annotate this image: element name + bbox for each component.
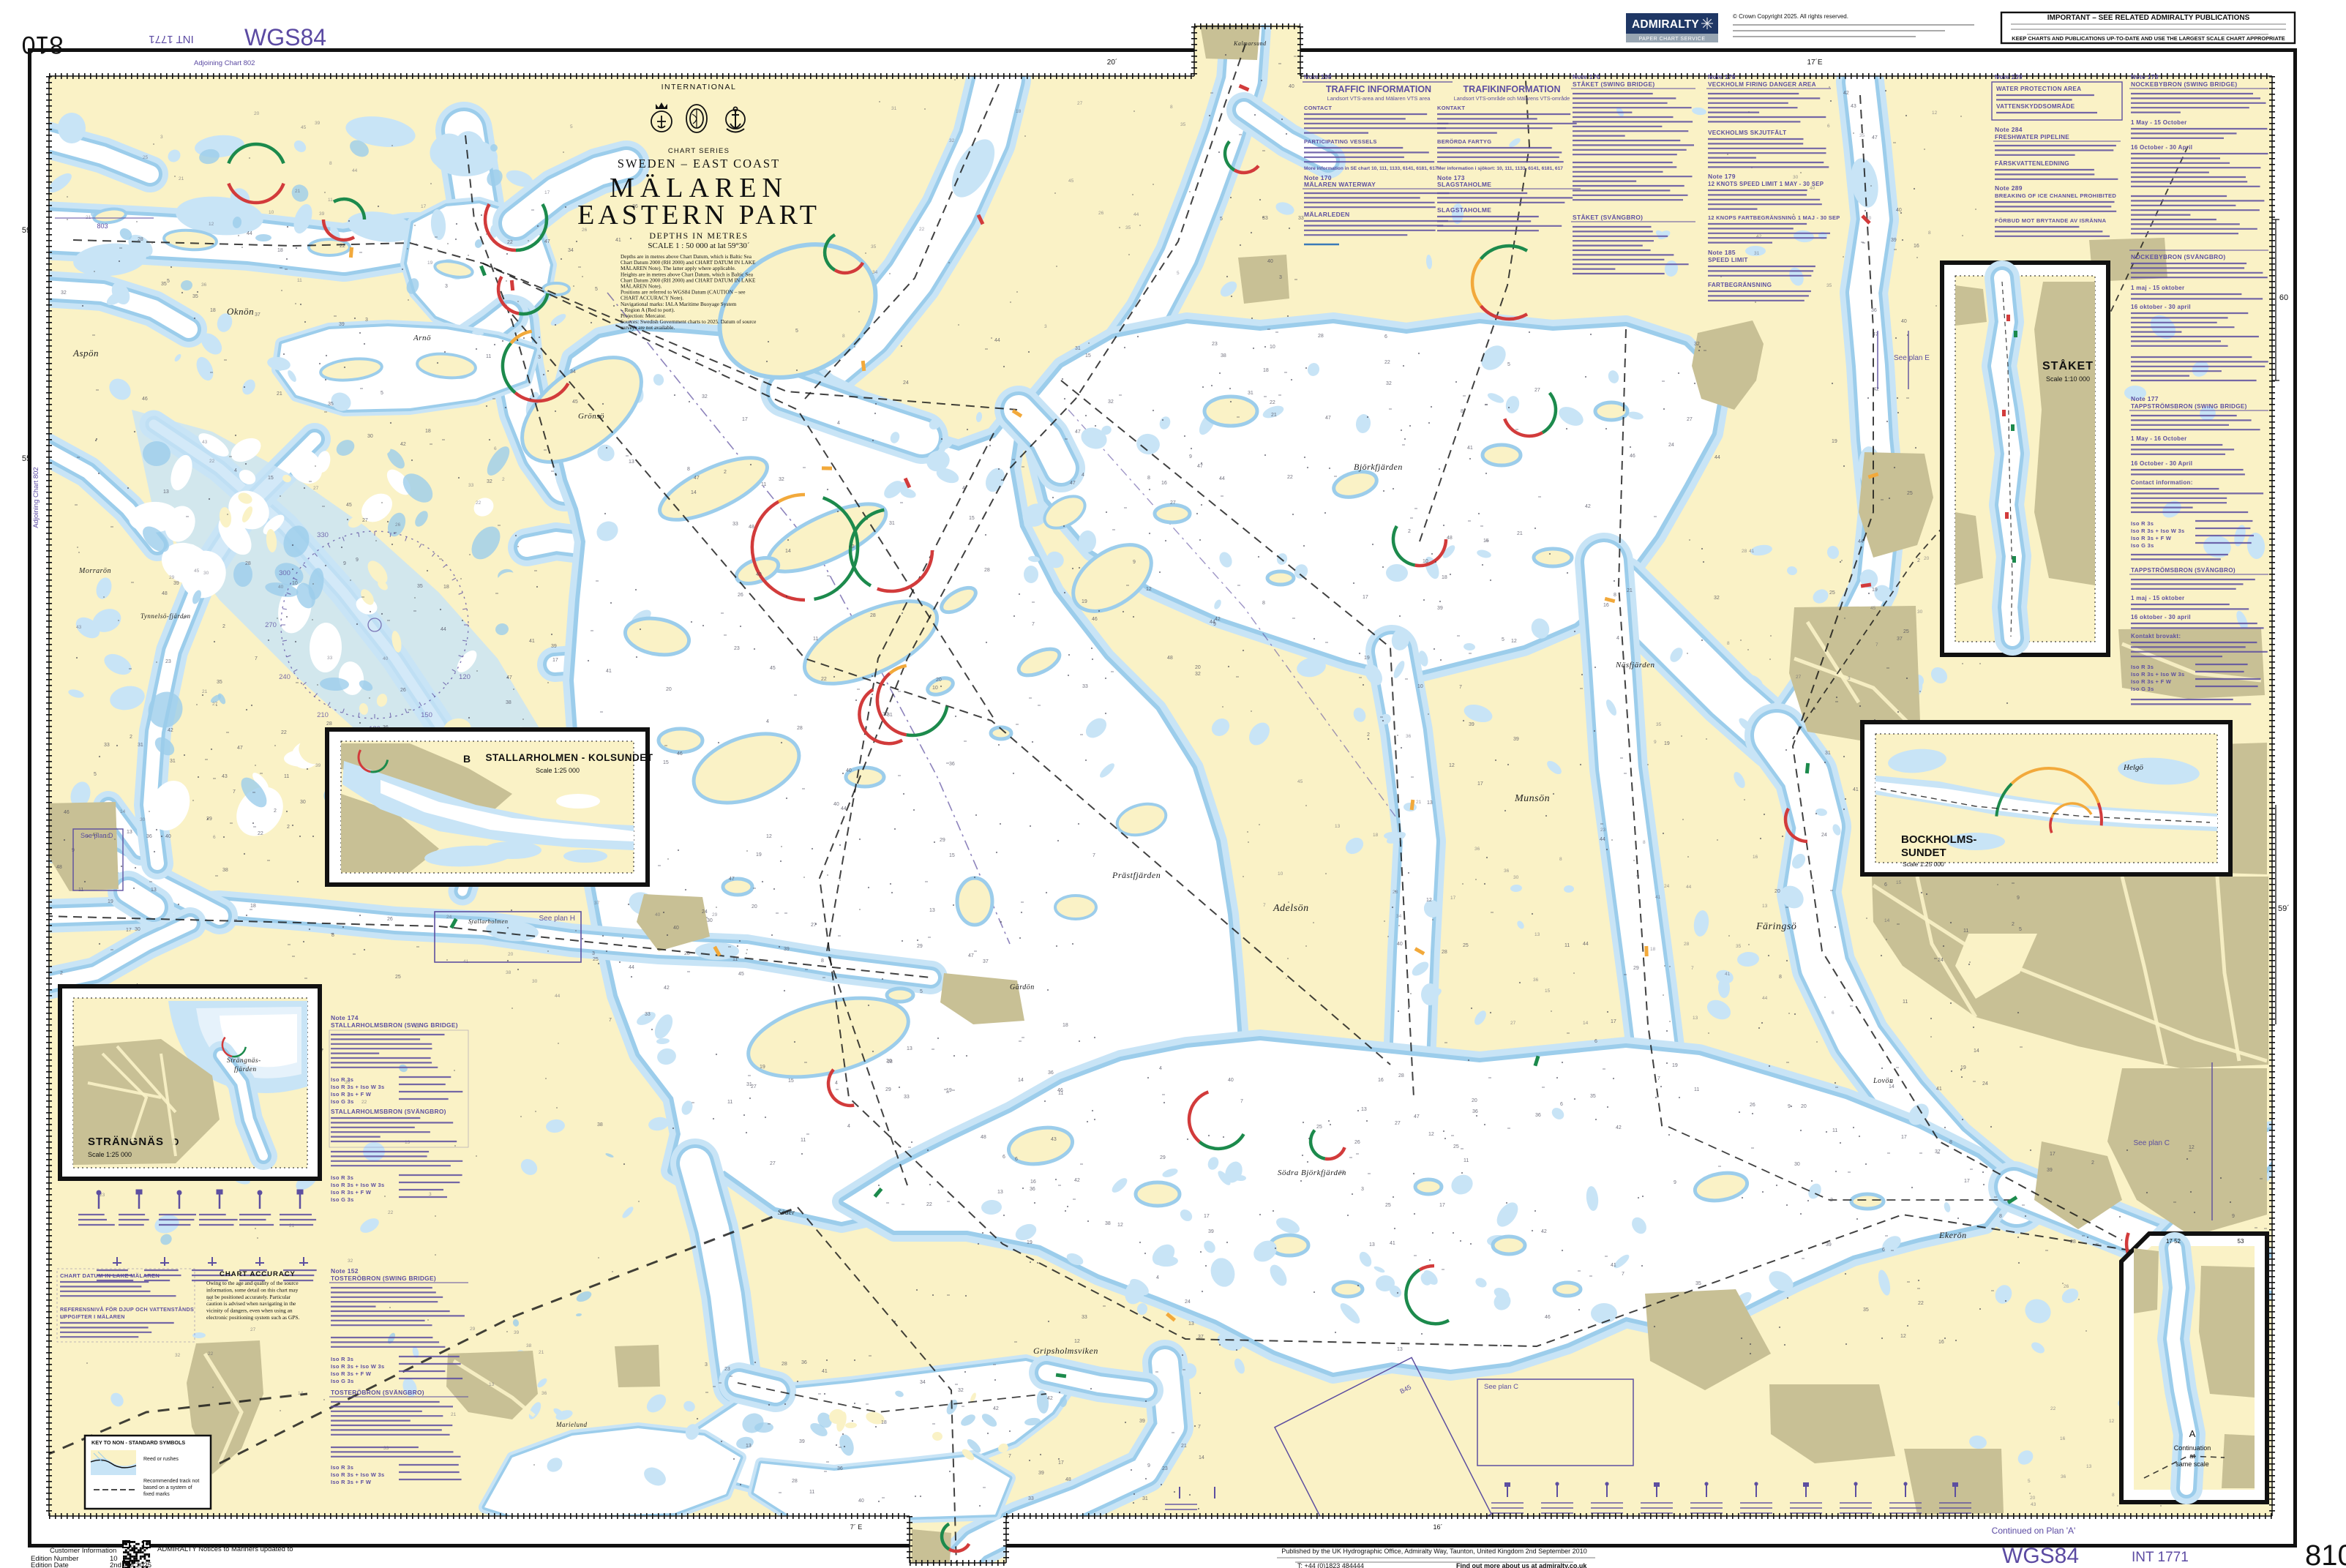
svg-text:43: 43 [2031,1502,2036,1507]
svg-text:28: 28 [245,561,251,566]
svg-text:Iso G 3s: Iso G 3s [331,1098,354,1105]
svg-text:30: 30 [140,817,146,822]
svg-text:21: 21 [1181,1444,1187,1449]
svg-text:43: 43 [222,774,228,779]
svg-text:Continued on Plan 'A': Continued on Plan 'A' [1992,1526,2076,1536]
svg-text:1 maj - 15 oktober: 1 maj - 15 oktober [2131,285,2184,291]
svg-text:1 May - 15 October: 1 May - 15 October [2131,119,2187,126]
svg-text:14: 14 [785,549,791,554]
svg-text:4: 4 [847,1124,850,1129]
svg-text:27: 27 [250,1327,256,1332]
svg-text:Iso R 3s + F W: Iso R 3s + F W [2131,678,2172,685]
svg-text:24: 24 [702,909,708,915]
svg-text:17 52: 17 52 [2166,1238,2181,1245]
svg-text:47: 47 [968,953,974,959]
svg-text:Iso R 3s: Iso R 3s [2131,664,2154,670]
svg-text:Grönsö: Grönsö [578,412,604,421]
svg-text:36: 36 [2061,1474,2066,1479]
svg-text:Note 289: Note 289 [1995,184,2023,192]
svg-text:32: 32 [1694,342,1700,347]
svg-text:30: 30 [882,712,888,717]
svg-text:21: 21 [277,391,282,397]
svg-text:13: 13 [1534,932,1540,937]
svg-text:12: 12 [1117,1223,1123,1228]
svg-text:INTERNATIONAL: INTERNATIONAL [662,83,737,91]
svg-text:25: 25 [143,155,149,160]
svg-text:44: 44 [629,965,634,970]
svg-text:38: 38 [1105,1221,1111,1226]
svg-text:11: 11 [1564,943,1570,948]
svg-text:24: 24 [1664,884,1670,889]
svg-text:16: 16 [1603,603,1609,608]
svg-text:fjärden: fjärden [234,1065,257,1073]
svg-text:20: 20 [1195,665,1201,670]
svg-text:28: 28 [782,1362,787,1367]
svg-text:44: 44 [247,231,252,236]
svg-text:TOSTERÖBRON (SWING BRIDGE): TOSTERÖBRON (SWING BRIDGE) [331,1275,436,1282]
svg-text:REFERENSNIVÅ FÖR DJUP OCH VATT: REFERENSNIVÅ FÖR DJUP OCH VATTENSTÅNDS [60,1306,194,1313]
svg-text:11: 11 [1963,929,1968,934]
svg-text:electronic positioning system: electronic positioning system such as GP… [206,1314,299,1321]
svg-text:11: 11 [761,482,766,487]
svg-text:18: 18 [1650,947,1656,952]
svg-text:3: 3 [445,284,448,289]
svg-text:48: 48 [1065,1477,1071,1482]
svg-text:17: 17 [1901,1135,1907,1140]
svg-text:13: 13 [1693,1016,1698,1021]
svg-text:42: 42 [1215,617,1221,622]
svg-text:6: 6 [494,446,497,451]
svg-text:15: 15 [1483,539,1489,544]
svg-text:15: 15 [663,760,669,765]
svg-text:38: 38 [597,1122,603,1128]
svg-text:INT 1771: INT 1771 [149,33,193,45]
svg-text:Note 176: Note 176 [1573,73,1600,80]
svg-text:22: 22 [919,227,925,232]
svg-text:26: 26 [738,593,743,598]
svg-text:42: 42 [664,986,670,991]
svg-text:59´: 59´ [2278,904,2290,913]
svg-text:15: 15 [1545,989,1551,994]
svg-text:32: 32 [487,479,492,484]
svg-text:TRAFFIC INFORMATION: TRAFFIC INFORMATION [1326,84,1431,94]
svg-text:Note 152: Note 152 [331,1267,359,1275]
svg-text:7: 7 [1459,685,1462,690]
svg-text:47: 47 [1197,464,1203,469]
svg-text:12: 12 [1449,763,1455,768]
svg-text:34: 34 [570,370,576,375]
svg-text:4: 4 [1616,636,1619,641]
svg-text:41: 41 [529,639,535,644]
svg-text:8: 8 [329,161,332,166]
svg-text:14: 14 [1889,1084,1895,1089]
svg-text:UPPGIFTER I MÄLAREN: UPPGIFTER I MÄLAREN [60,1313,125,1320]
svg-text:41: 41 [606,669,612,674]
svg-text:32: 32 [1714,596,1720,601]
svg-text:30: 30 [1917,609,1923,615]
svg-text:41: 41 [1853,787,1859,792]
svg-text:28: 28 [984,568,990,573]
svg-text:9: 9 [1189,454,1192,459]
svg-text:47: 47 [694,476,700,481]
svg-text:9: 9 [1654,740,1657,745]
svg-text:40: 40 [165,834,171,839]
svg-text:330: 330 [317,531,329,539]
svg-text:28: 28 [1442,950,1447,955]
svg-text:9: 9 [356,558,359,563]
svg-text:5: 5 [1220,217,1223,222]
svg-text:35: 35 [328,402,334,407]
svg-text:8: 8 [1170,105,1173,110]
svg-text:34: 34 [1396,914,1402,919]
svg-text:2: 2 [502,477,505,482]
svg-text:25: 25 [1316,1125,1322,1130]
svg-text:Scale 1:25 000: Scale 1:25 000 [536,767,580,774]
svg-text:45: 45 [1870,606,1876,611]
svg-text:11: 11 [284,774,289,779]
svg-text:25: 25 [1453,1144,1459,1149]
svg-text:23: 23 [724,1367,730,1372]
svg-text:Ekerön: Ekerön [1938,1230,1967,1240]
svg-text:3: 3 [160,135,163,140]
svg-text:35: 35 [192,294,198,299]
svg-text:19: 19 [1872,588,1878,593]
svg-text:26: 26 [387,917,393,922]
svg-text:31: 31 [138,743,143,748]
svg-text:31: 31 [1754,251,1760,256]
svg-text:13: 13 [1369,1242,1375,1248]
svg-text:29: 29 [917,944,923,949]
svg-text:Tynnelsö-fjärden: Tynnelsö-fjärden [140,612,191,620]
svg-text:7: 7 [1093,853,1095,858]
svg-text:5: 5 [2019,927,2022,932]
svg-text:41: 41 [1749,549,1755,554]
svg-text:38: 38 [526,1343,532,1348]
svg-text:21: 21 [202,689,208,694]
svg-text:12: 12 [1900,1334,1906,1339]
svg-text:34: 34 [920,1380,926,1385]
svg-text:33: 33 [1262,216,1268,221]
svg-text:Note 284: Note 284 [1995,126,2023,133]
svg-text:39: 39 [1437,606,1443,611]
svg-text:Customer Information: Customer Information [50,1547,116,1555]
svg-text:33: 33 [645,1012,651,1017]
svg-text:2: 2 [60,971,63,976]
svg-text:STALLARHOLMSBRON (SWING BRIDGE: STALLARHOLMSBRON (SWING BRIDGE) [331,1021,458,1029]
svg-text:Arnö: Arnö [413,334,431,342]
svg-text:37: 37 [594,901,600,906]
svg-text:40: 40 [673,926,679,931]
svg-text:36: 36 [1871,308,1877,313]
svg-text:12: 12 [1932,110,1938,116]
svg-text:7: 7 [1032,622,1035,627]
svg-text:Iso R 3s + F W: Iso R 3s + F W [331,1479,372,1485]
svg-text:41: 41 [1611,1263,1616,1268]
svg-text:35: 35 [217,680,222,685]
svg-text:4: 4 [234,468,237,473]
svg-text:28: 28 [1684,942,1690,947]
svg-text:48: 48 [749,525,754,530]
svg-text:40: 40 [1228,1078,1234,1083]
svg-text:37: 37 [1198,1335,1204,1340]
svg-text:Marielund: Marielund [555,1421,588,1428]
svg-text:INT 1771: INT 1771 [2132,1550,2189,1565]
svg-text:Scale 1:25 000: Scale 1:25 000 [1903,860,1944,868]
svg-text:37: 37 [1897,637,1903,642]
svg-text:STÅKET (SVÄNGBRO): STÅKET (SVÄNGBRO) [1573,214,1643,221]
svg-text:23: 23 [1212,342,1218,347]
svg-text:27: 27 [1395,1121,1401,1126]
svg-text:28: 28 [870,613,876,618]
svg-text:20´: 20´ [1107,58,1117,67]
svg-text:19: 19 [1664,741,1670,746]
svg-text:44: 44 [994,338,1000,343]
svg-text:22: 22 [1384,360,1390,365]
svg-text:18: 18 [443,585,449,590]
svg-text:PARTICIPATING VESSELS: PARTICIPATING VESSELS [1304,138,1377,145]
svg-text:7: 7 [1263,903,1266,908]
svg-text:36: 36 [1472,1109,1478,1114]
svg-text:Contact information:: Contact information: [2131,479,2193,486]
svg-text:23: 23 [165,659,171,664]
svg-text:19: 19 [108,899,113,904]
svg-text:17: 17 [421,204,427,209]
svg-text:KONTAKT: KONTAKT [1437,105,1465,111]
svg-text:47: 47 [544,239,550,244]
svg-text:37: 37 [1935,1149,1941,1155]
svg-text:35: 35 [1656,722,1662,727]
svg-text:See plan E: See plan E [1894,354,1930,362]
svg-text:Edition Date: Edition Date [31,1561,69,1568]
svg-text:Note 178: Note 178 [2131,73,2159,80]
svg-text:Södra Björkfjärden: Södra Björkfjärden [1278,1169,1346,1177]
svg-text:36: 36 [1048,1070,1054,1076]
svg-text:22: 22 [281,730,287,735]
svg-text:NOCKEBYBRON (SWING BRIDGE): NOCKEBYBRON (SWING BRIDGE) [2131,80,2238,88]
svg-text:caution is advised when naviga: caution is advised when navigating in th… [206,1300,296,1307]
svg-text:19: 19 [1082,599,1087,604]
svg-text:SWEDEN – EAST COAST: SWEDEN – EAST COAST [618,157,780,170]
svg-text:PAPER CHART SERVICE: PAPER CHART SERVICE [1638,37,1705,42]
svg-text:15: 15 [969,516,975,521]
svg-text:39: 39 [339,322,345,327]
svg-text:Note 174: Note 174 [331,1014,359,1021]
svg-text:30: 30 [203,571,209,576]
svg-text:9: 9 [1674,1180,1676,1185]
svg-text:22: 22 [507,240,513,245]
svg-text:22: 22 [926,1202,932,1207]
svg-text:33: 33 [468,483,474,488]
svg-text:6: 6 [1594,1039,1597,1044]
svg-text:surveys are not available.: surveys are not available. [621,324,675,331]
svg-text:Munsön: Munsön [1514,793,1550,804]
svg-text:810: 810 [2305,1539,2346,1568]
svg-text:33: 33 [904,1095,910,1100]
svg-text:25: 25 [1903,629,1909,634]
svg-text:Iso G 3s: Iso G 3s [2131,542,2154,549]
svg-text:8: 8 [1614,593,1616,598]
svg-text:30: 30 [1513,875,1519,880]
svg-text:3: 3 [1361,1187,1364,1192]
svg-text:5: 5 [167,279,170,284]
svg-text:2: 2 [1367,732,1370,738]
svg-text:15: 15 [1896,880,1902,885]
svg-text:45: 45 [770,666,776,671]
svg-text:Landsort VTS-område och Mälare: Landsort VTS-område och Mälarens VTS-omr… [1454,95,1570,102]
svg-text:29: 29 [470,1327,476,1332]
svg-text:Iso R 3s: Iso R 3s [2131,520,2154,527]
svg-text:18: 18 [1373,833,1379,838]
svg-text:11: 11 [727,1100,732,1105]
svg-text:5: 5 [2028,1479,2031,1484]
svg-text:27: 27 [1170,500,1176,506]
svg-text:20: 20 [2030,1496,2036,1501]
svg-text:270: 270 [265,621,277,629]
svg-text:Aspön: Aspön [72,348,99,359]
svg-text:29: 29 [885,1087,891,1092]
svg-text:43: 43 [1051,1137,1057,1142]
svg-text:22: 22 [1918,1301,1924,1306]
svg-text:KEEP CHARTS AND PUBLICATIONS U: KEEP CHARTS AND PUBLICATIONS UP-TO-DATE … [2012,35,2285,42]
svg-text:31: 31 [1248,391,1253,396]
svg-text:42: 42 [168,728,173,733]
svg-text:35: 35 [1180,122,1186,127]
svg-text:36: 36 [1030,1187,1035,1192]
svg-text:12: 12 [2189,1145,2195,1150]
svg-text:22: 22 [1270,400,1275,405]
svg-text:NOCKEBYBRON (SVÄNGBRO): NOCKEBYBRON (SVÄNGBRO) [2131,253,2225,260]
svg-text:15: 15 [949,853,955,858]
svg-text:6: 6 [1003,1155,1005,1160]
svg-text:46: 46 [1057,1088,1063,1093]
svg-text:43: 43 [1851,104,1856,109]
svg-text:ADMIRALTY Notices to Mariners: ADMIRALTY Notices to Mariners updated to [157,1545,293,1553]
svg-text:17: 17 [1439,1203,1445,1208]
svg-text:19: 19 [427,260,433,266]
svg-text:46: 46 [1630,454,1635,459]
svg-text:39: 39 [799,1439,805,1444]
svg-text:16: 16 [1030,1179,1036,1185]
svg-text:12: 12 [766,834,772,839]
svg-text:Iso R 3s + Iso W 3s: Iso R 3s + Iso W 3s [331,1182,384,1188]
svg-text:27: 27 [1687,417,1693,422]
svg-text:18: 18 [887,1059,893,1065]
svg-text:44: 44 [841,806,847,811]
svg-text:14: 14 [1974,1049,1979,1054]
svg-text:11: 11 [801,1138,806,1143]
svg-text:See plan C: See plan C [1484,1383,1518,1391]
svg-text:11: 11 [813,637,818,642]
svg-text:150: 150 [421,711,432,719]
svg-text:17: 17 [2050,1152,2055,1157]
svg-text:13: 13 [1335,824,1341,829]
svg-text:17: 17 [126,928,132,933]
svg-text:KEY TO NON - STANDARD SYMBOLS: KEY TO NON - STANDARD SYMBOLS [91,1439,185,1446]
svg-text:Iso R 3s + Iso W 3s: Iso R 3s + Iso W 3s [2131,671,2184,678]
svg-text:8: 8 [1461,409,1464,414]
svg-text:TRAFIKINFORMATION: TRAFIKINFORMATION [1463,84,1560,94]
svg-text:VECKHOLMS SKJUTFÄLT: VECKHOLMS SKJUTFÄLT [1708,129,1786,136]
svg-text:11: 11 [486,354,491,359]
svg-text:39: 39 [315,763,321,768]
svg-text:300: 300 [279,569,291,577]
svg-text:42: 42 [1873,387,1879,392]
svg-text:3: 3 [1279,275,1282,280]
svg-text:Iso R 3s + F W: Iso R 3s + F W [331,1370,372,1377]
svg-text:36: 36 [1535,1113,1541,1118]
svg-text:44: 44 [441,627,446,632]
svg-text:Iso R 3s: Iso R 3s [331,1464,353,1471]
svg-text:21: 21 [1517,531,1523,536]
svg-text:1 maj - 15 oktober: 1 maj - 15 oktober [2131,595,2184,601]
svg-text:Kontakt brovakt:: Kontakt brovakt: [2131,633,2181,639]
svg-text:20: 20 [1801,1104,1807,1109]
svg-text:19: 19 [1672,1063,1678,1068]
svg-text:Morrarön: Morrarön [78,567,111,575]
svg-text:11: 11 [732,957,738,962]
svg-text:42: 42 [400,442,406,447]
svg-text:not be positioned accurately.: not be positioned accurately. Particular [206,1294,291,1300]
svg-text:9: 9 [343,561,346,566]
svg-text:2: 2 [1408,529,1411,534]
svg-text:16 October - 30 April: 16 October - 30 April [2131,460,2192,467]
svg-text:30: 30 [1794,1162,1800,1167]
svg-text:WGS84: WGS84 [2002,1544,2079,1568]
svg-text:42: 42 [1843,91,1849,96]
svg-text:27: 27 [212,702,218,707]
svg-text:24: 24 [1185,1299,1191,1305]
svg-text:13: 13 [997,1190,1003,1195]
svg-text:28: 28 [684,951,690,956]
svg-text:44: 44 [555,994,561,999]
svg-text:20: 20 [752,904,757,909]
svg-text:13: 13 [629,459,634,465]
svg-text:45: 45 [346,503,352,508]
svg-text:19: 19 [756,852,762,858]
svg-text:Iso R 3s + F W: Iso R 3s + F W [2131,535,2172,541]
svg-text:11: 11 [1832,1128,1837,1133]
svg-text:4: 4 [835,1081,838,1086]
svg-text:27: 27 [1510,1021,1516,1026]
svg-text:42: 42 [1541,1229,1547,1234]
svg-text:STALLARHOLMSBRON (SVÄNGBRO): STALLARHOLMSBRON (SVÄNGBRO) [331,1108,446,1115]
svg-text:60: 60 [2279,293,2288,302]
svg-text:8: 8 [1928,230,1931,236]
svg-text:39: 39 [784,947,790,952]
svg-text:Scale 1:25 000: Scale 1:25 000 [88,1151,132,1158]
svg-text:B: B [463,753,471,765]
svg-text:Note 239: Note 239 [1995,73,2023,80]
svg-text:6: 6 [1882,1248,1885,1253]
svg-text:13: 13 [127,830,132,835]
svg-text:44: 44 [1133,212,1139,217]
svg-text:3: 3 [538,355,541,360]
svg-text:40: 40 [846,768,852,773]
svg-text:SLAGSTAHOLME: SLAGSTAHOLME [1437,206,1491,214]
svg-text:10: 10 [269,210,274,215]
svg-text:14: 14 [1583,1021,1589,1026]
svg-text:20: 20 [936,678,942,683]
svg-text:18: 18 [250,904,256,909]
svg-text:Gärdön: Gärdön [1010,983,1035,991]
svg-text:24: 24 [1821,833,1827,838]
svg-text:19: 19 [1027,1240,1033,1245]
svg-text:7´ E: 7´ E [850,1523,863,1531]
svg-text:33: 33 [1028,1496,1034,1501]
svg-text:Gripsholmsviken: Gripsholmsviken [1033,1346,1098,1356]
svg-text:SCALE 1 : 50 000 at lat 59°30´: SCALE 1 : 50 000 at lat 59°30´ [648,241,749,250]
svg-text:13: 13 [929,908,935,913]
